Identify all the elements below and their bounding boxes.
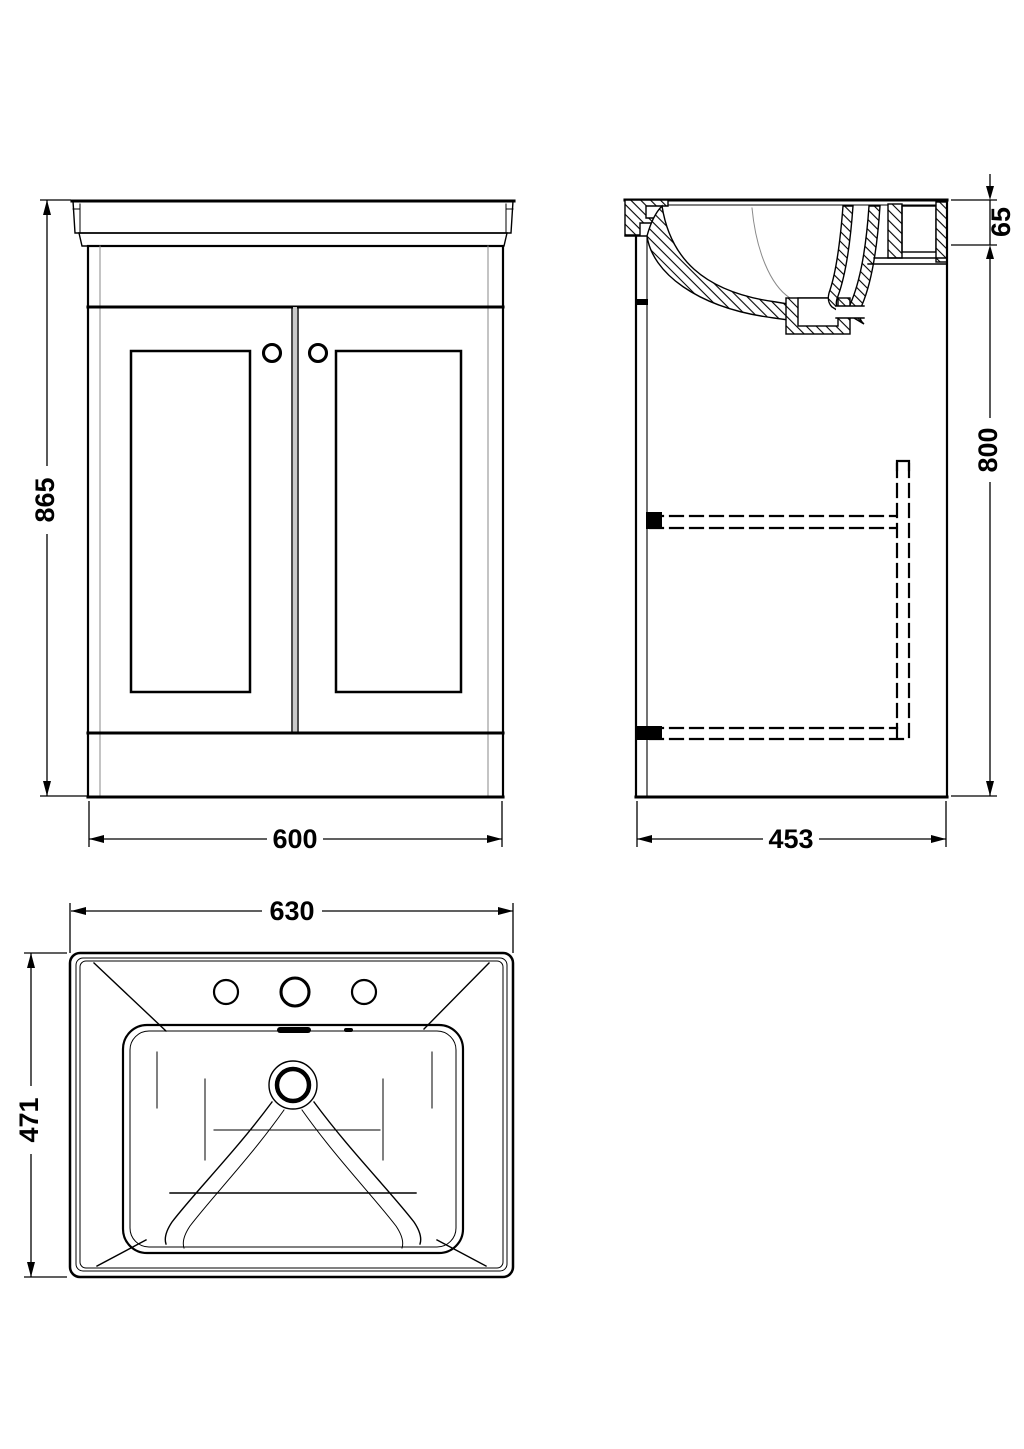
- front-counter-lip: [79, 233, 507, 246]
- dim-side-depth: 453: [637, 801, 946, 854]
- basin-corner-diagonal-tl: [94, 963, 166, 1031]
- overflow-slot: [277, 1027, 311, 1033]
- dim-arrow: [27, 1262, 35, 1277]
- bowl-rim-inner: [130, 1031, 456, 1247]
- overflow-mark: [344, 1028, 353, 1032]
- front-door-gap: [293, 307, 297, 733]
- front-right-door-panel: [336, 351, 461, 692]
- dim-arrow: [43, 781, 51, 796]
- dim-label-side-depth: 453: [768, 824, 813, 854]
- bowl-sweep-right-outer: [314, 1102, 421, 1244]
- dim-label-front-width: 600: [272, 824, 317, 854]
- dim-front-width: 600: [89, 801, 502, 854]
- dim-label-cabinet-height: 800: [973, 427, 1003, 472]
- side-view: [625, 200, 947, 797]
- front-left-door-panel: [131, 351, 250, 692]
- dim-arrow: [498, 907, 513, 915]
- tap-hole-left: [214, 980, 238, 1004]
- dim-basin-depth: 471: [14, 953, 67, 1277]
- dim-side-heights: 65 800: [951, 174, 1016, 796]
- basin-top-view: [70, 953, 513, 1277]
- dim-arrow: [986, 186, 994, 200]
- side-back-panel-cap: [897, 461, 909, 470]
- technical-drawing-canvas: 865 600: [0, 0, 1024, 1449]
- dim-label-basin-depth: 471: [14, 1097, 44, 1142]
- dim-arrow: [89, 835, 104, 843]
- bowl-sweep-right-inner: [302, 1110, 403, 1248]
- side-overflow-stub: [836, 306, 864, 318]
- dim-arrow: [487, 835, 502, 843]
- side-shelf-fixing-block: [646, 512, 662, 529]
- side-back-block-rear-band: [936, 202, 947, 262]
- side-back-block-front-band: [888, 204, 902, 258]
- front-countertop: [73, 201, 513, 233]
- dim-label-basin-width: 630: [269, 896, 314, 926]
- dim-arrow: [71, 907, 86, 915]
- dim-basin-width: 630: [70, 896, 513, 953]
- side-wall-joint-block: [635, 299, 648, 305]
- bowl-sweep-left-inner: [183, 1110, 284, 1248]
- drain-inner-ring: [277, 1069, 309, 1101]
- tap-hole-center: [281, 978, 309, 1006]
- side-back-block-slot: [902, 206, 936, 252]
- front-view: [72, 201, 514, 797]
- vanity-drawing-svg: 865 600: [0, 0, 1024, 1449]
- right-door-knob: [310, 345, 327, 362]
- dim-arrow: [27, 953, 35, 968]
- basin-outer-edge: [70, 953, 513, 1277]
- dim-front-height: 865: [30, 200, 87, 796]
- dim-arrow: [986, 781, 994, 796]
- dim-arrow: [637, 835, 652, 843]
- dim-arrow: [43, 200, 51, 215]
- side-bowl-back-contour: [752, 208, 790, 298]
- dim-label-basin-height: 65: [986, 207, 1016, 237]
- side-overflow-wall-front: [828, 206, 853, 312]
- dim-arrow: [931, 835, 946, 843]
- bowl-sweep-left-outer: [165, 1102, 272, 1244]
- basin-corner-diagonal-tr: [424, 963, 489, 1029]
- side-bowl-wall-section: [647, 206, 788, 320]
- dim-label-front-height: 865: [30, 477, 60, 522]
- left-door-knob: [264, 345, 281, 362]
- tap-hole-right: [352, 980, 376, 1004]
- dim-arrow: [986, 245, 994, 259]
